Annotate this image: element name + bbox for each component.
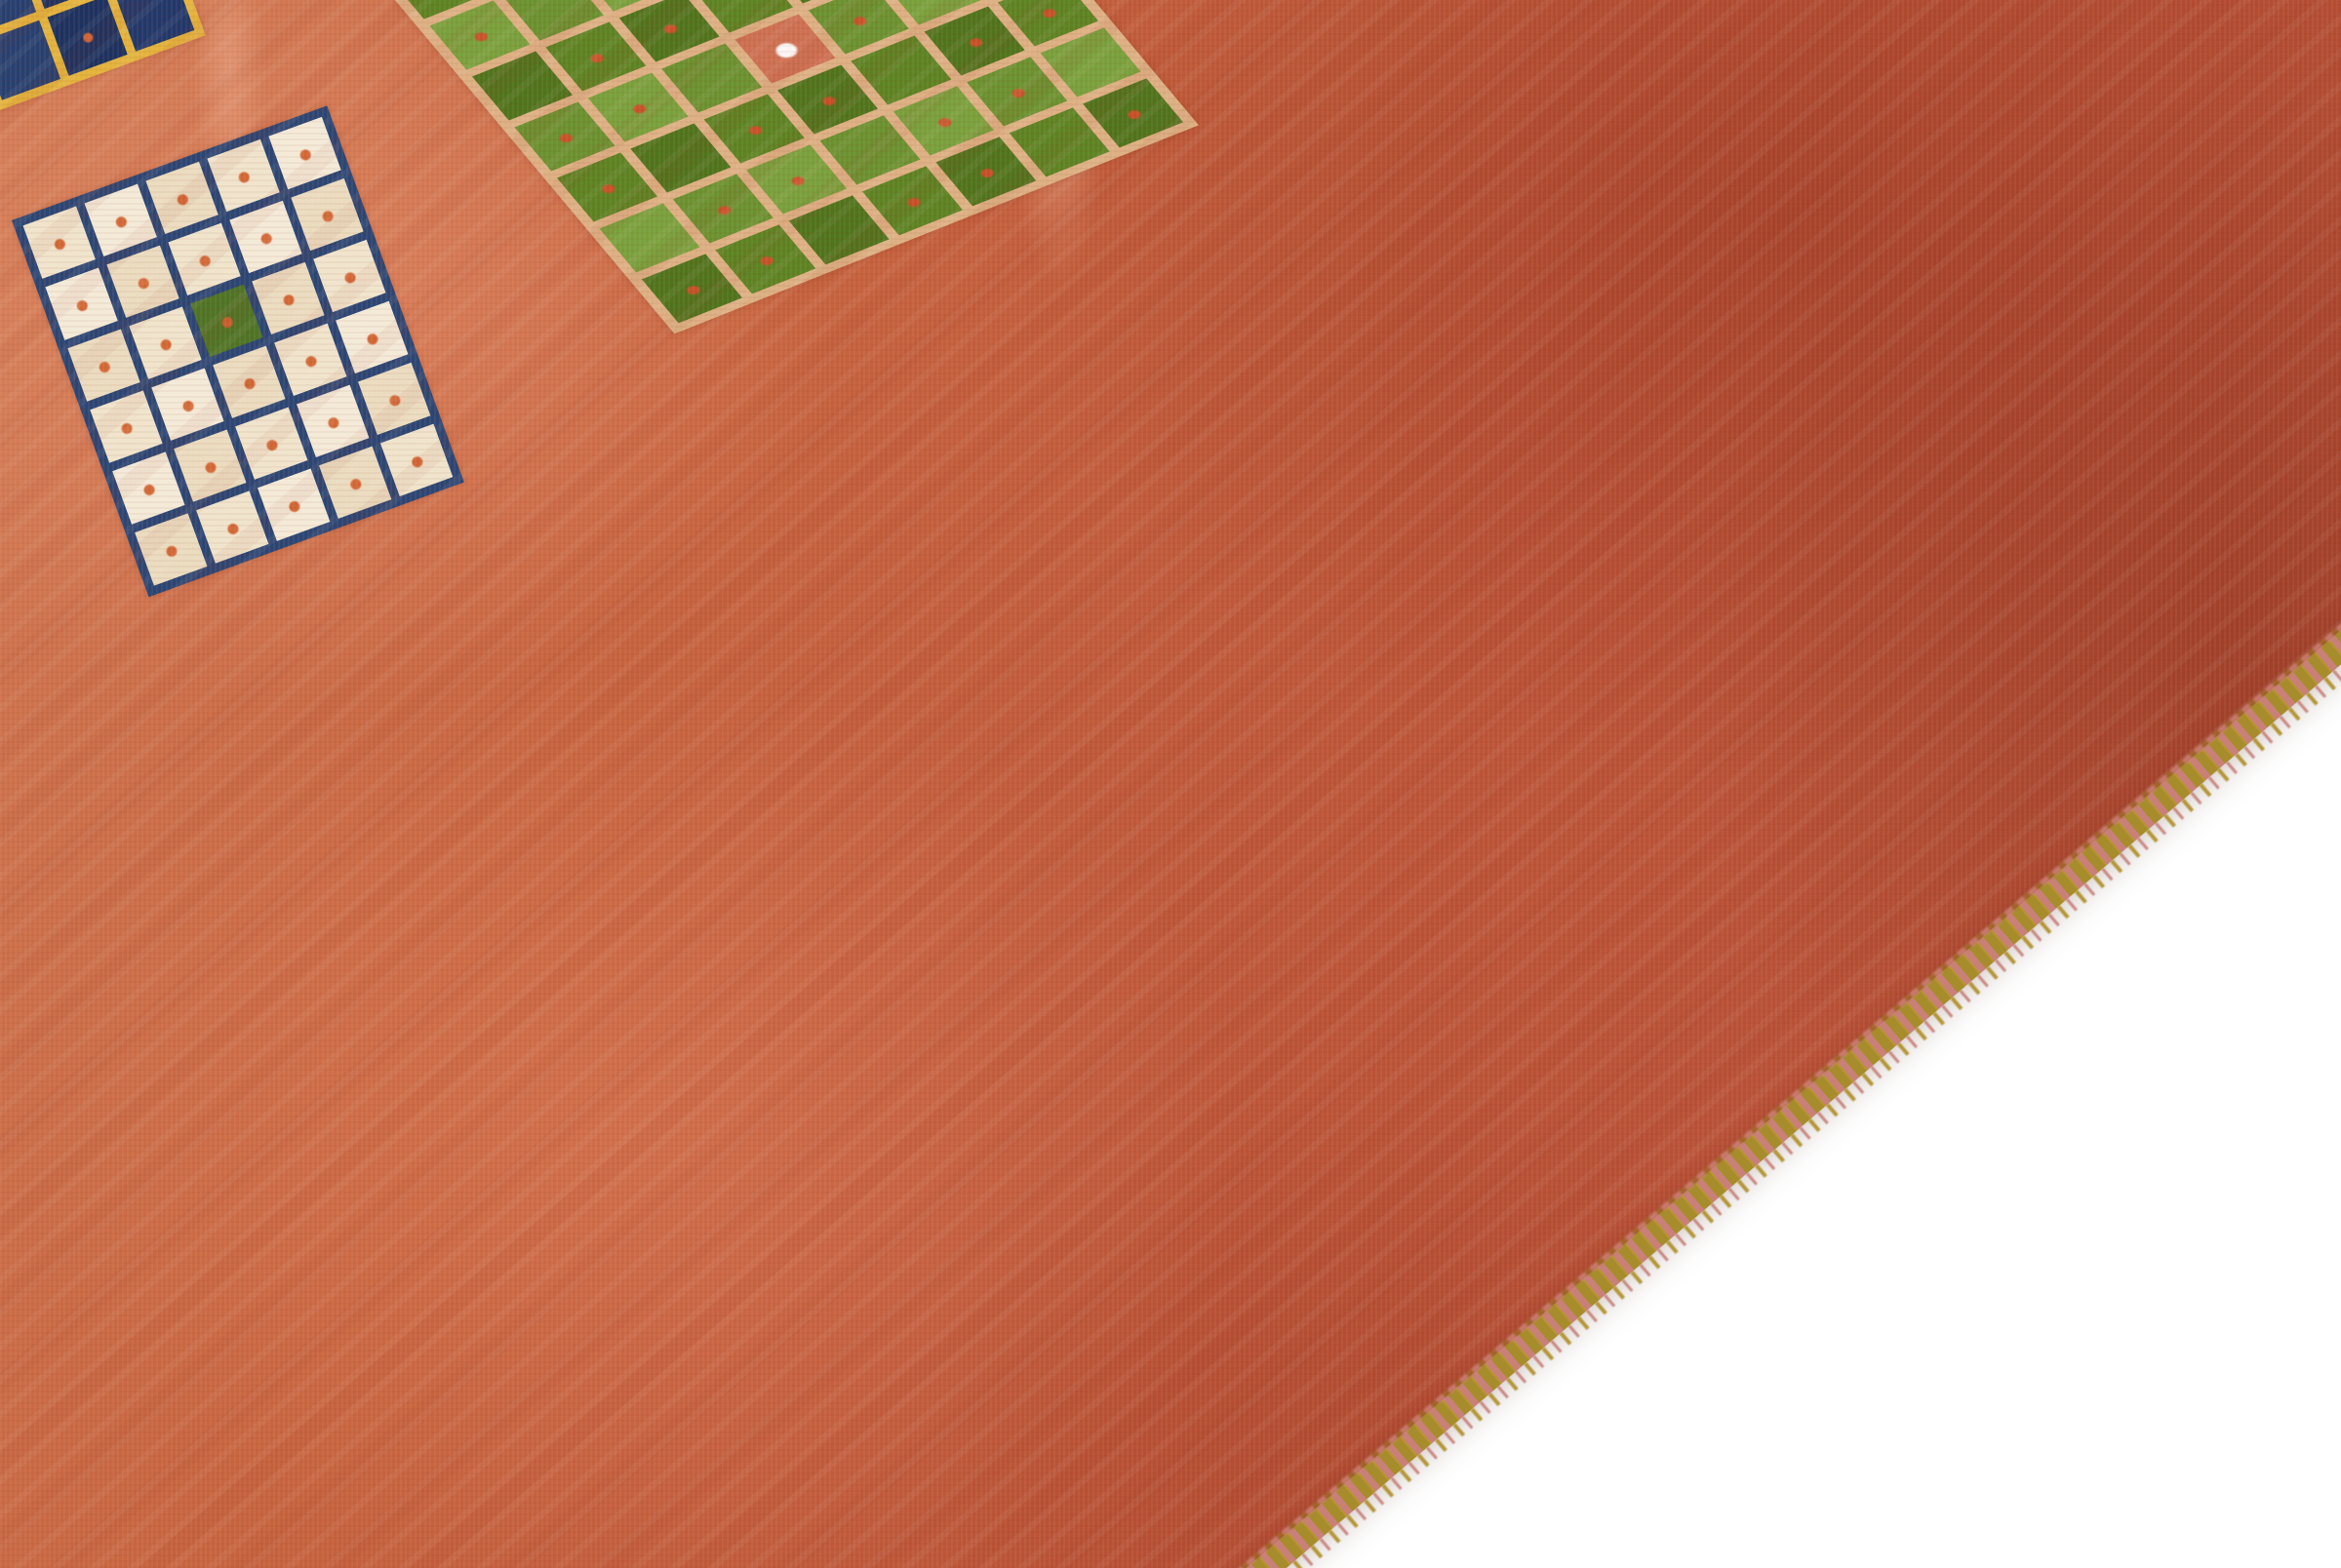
motif-cell (48, 0, 128, 76)
cell-dot (226, 522, 240, 535)
cell-dot (159, 337, 173, 351)
cell-dot (165, 544, 179, 558)
motif-cell (336, 301, 408, 373)
cell-dot (237, 171, 251, 184)
motif-cell (45, 268, 117, 340)
cell-dot (978, 167, 996, 178)
cell-dot (181, 399, 195, 412)
motif-cell (274, 324, 346, 396)
motif-cell (145, 162, 218, 234)
cell-dot (114, 215, 128, 228)
cell-dot (53, 237, 66, 251)
cell-dot (588, 52, 606, 63)
motif-cell (174, 429, 246, 501)
cell-dot (472, 30, 490, 42)
motif-cell (23, 207, 96, 279)
cell-dot (1041, 7, 1058, 19)
motif-cell (291, 178, 363, 251)
rug-photo (0, 0, 2341, 1568)
cell-dot (746, 124, 764, 136)
cell-dot (204, 460, 218, 474)
motif-cell (313, 240, 385, 312)
cell-dot (176, 192, 189, 206)
motif-cell (129, 307, 201, 379)
cell-dot (661, 22, 679, 34)
motif-cell (112, 451, 184, 524)
cell-dot (327, 415, 340, 429)
motif-cell (268, 117, 340, 189)
motif-cell (114, 0, 194, 52)
cell-dot (120, 421, 134, 435)
cell-dot (243, 376, 257, 390)
cell-dot (852, 15, 869, 26)
cell-dot (716, 204, 734, 216)
cell-dot (304, 354, 318, 368)
cell-dot (282, 293, 296, 306)
motif-cell (168, 223, 240, 295)
cell-dot (388, 393, 402, 407)
cell-dot (321, 210, 335, 223)
motif-cell (229, 201, 301, 273)
motif-cell (151, 369, 223, 441)
motif-cell (207, 139, 279, 212)
cell-dot (198, 254, 212, 267)
cell-dot (789, 175, 807, 186)
cell-dot (220, 315, 234, 329)
cell-dot (265, 438, 279, 451)
motif-cell (90, 390, 162, 462)
cell-dot (758, 255, 775, 266)
cell-dot (631, 102, 649, 114)
cell-dot (685, 284, 702, 295)
cell-dot (967, 36, 984, 48)
cell-dot (936, 116, 954, 128)
motif-cell (67, 329, 139, 401)
cell-dot (98, 360, 111, 373)
motif-cell (84, 184, 156, 256)
cell-dot (820, 95, 838, 106)
cell-dot (557, 132, 575, 143)
motif-cell (235, 408, 307, 480)
motif-cell (135, 513, 207, 585)
cell-dot (905, 196, 923, 208)
cell-dot (343, 271, 357, 285)
cell-dot (366, 333, 379, 346)
motif-cell (196, 490, 268, 563)
motif-cell (297, 385, 369, 457)
cell-dot (411, 454, 424, 468)
cell-dot (75, 298, 89, 312)
cell-dot (1010, 87, 1027, 98)
cell-dot (600, 182, 617, 194)
motif-cell (190, 285, 262, 357)
motif-cell (0, 20, 60, 100)
cell-dot (82, 31, 95, 44)
motif-cell (106, 246, 179, 318)
motif-cell (252, 262, 324, 334)
cell-dot (1126, 108, 1143, 120)
cell-dot (288, 499, 301, 513)
cell-dot (772, 40, 801, 59)
motif-cell (258, 469, 330, 541)
motif-cell (380, 424, 453, 496)
motif-cell (319, 447, 391, 519)
cell-dot (298, 148, 312, 162)
motif-cell (213, 346, 285, 418)
cell-dot (137, 276, 150, 290)
motif-cell (358, 363, 430, 435)
cell-dot (349, 477, 363, 490)
cell-dot (142, 483, 156, 496)
cell-dot (259, 232, 273, 246)
